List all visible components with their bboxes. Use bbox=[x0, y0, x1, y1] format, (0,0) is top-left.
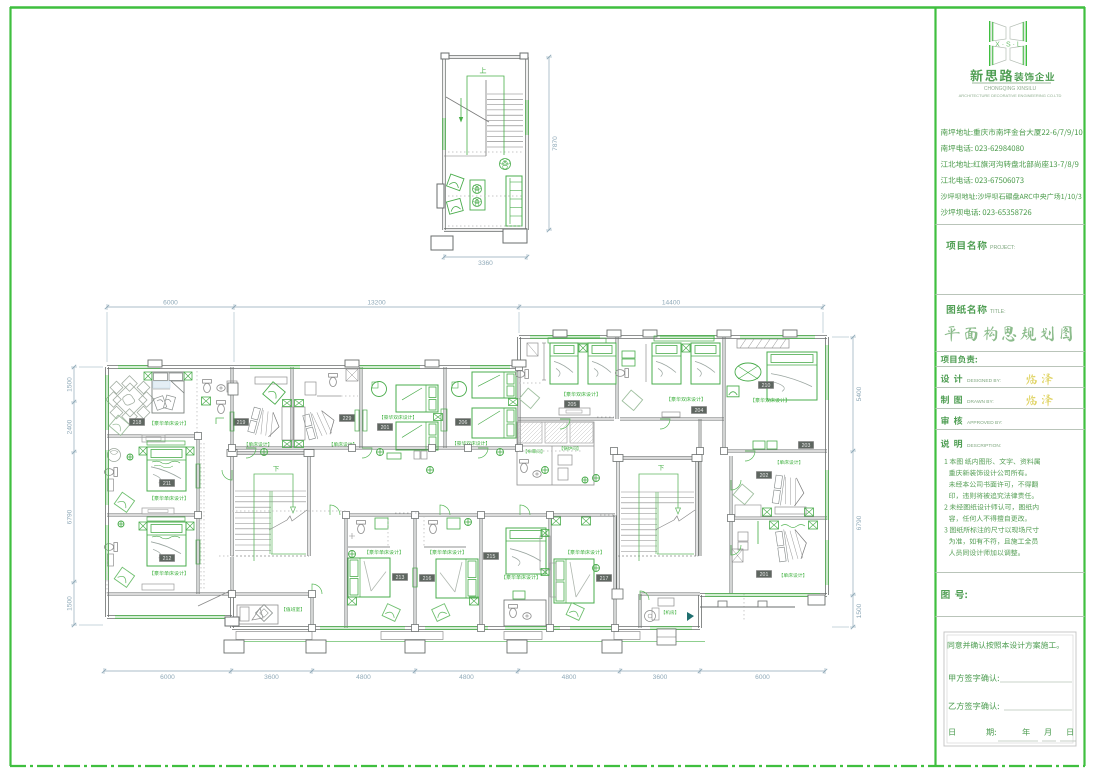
svg-text:X · S · L: X · S · L bbox=[995, 42, 1021, 49]
svg-text:215: 215 bbox=[487, 554, 496, 560]
svg-text:202: 202 bbox=[760, 473, 769, 479]
svg-text:201: 201 bbox=[760, 572, 769, 578]
svg-text:1500: 1500 bbox=[856, 603, 863, 618]
svg-text:3600: 3600 bbox=[264, 674, 279, 681]
svg-text:6000: 6000 bbox=[160, 674, 175, 681]
svg-text:206: 206 bbox=[459, 420, 468, 426]
svg-text:204: 204 bbox=[695, 408, 704, 414]
svg-text:ARCHITECTURE DECORATIVE ENGINE: ARCHITECTURE DECORATIVE ENGINEERING CO.L… bbox=[959, 93, 1062, 98]
svg-text:203: 203 bbox=[802, 443, 811, 449]
svg-text:216: 216 bbox=[423, 576, 432, 582]
svg-text:210: 210 bbox=[762, 383, 771, 389]
svg-text:212: 212 bbox=[163, 556, 172, 562]
svg-text:3600: 3600 bbox=[653, 674, 668, 681]
svg-text:DRAWN BY:: DRAWN BY: bbox=[967, 399, 994, 405]
svg-text:PROJECT:: PROJECT: bbox=[990, 245, 1015, 251]
svg-text:14400: 14400 bbox=[662, 300, 681, 307]
svg-text:5400: 5400 bbox=[856, 386, 863, 401]
svg-text:3360: 3360 bbox=[478, 260, 493, 267]
svg-text:229: 229 bbox=[343, 416, 352, 422]
svg-text:1500: 1500 bbox=[67, 596, 74, 611]
svg-text:213: 213 bbox=[396, 575, 405, 581]
svg-text:7870: 7870 bbox=[552, 136, 559, 151]
svg-text:211: 211 bbox=[163, 481, 171, 487]
svg-text:4800: 4800 bbox=[562, 674, 577, 681]
svg-text:APPROVED BY:: APPROVED BY: bbox=[967, 420, 1002, 426]
svg-text:4800: 4800 bbox=[459, 674, 474, 681]
svg-text:6000: 6000 bbox=[755, 674, 770, 681]
svg-text:4800: 4800 bbox=[356, 674, 371, 681]
svg-text:6000: 6000 bbox=[163, 300, 178, 307]
svg-text:6790: 6790 bbox=[67, 509, 74, 524]
svg-text:DESIGNED BY:: DESIGNED BY: bbox=[967, 378, 1001, 384]
svg-text:TITLE:: TITLE: bbox=[990, 309, 1006, 315]
svg-text:CHONGQING XINSILU: CHONGQING XINSILU bbox=[984, 86, 1037, 92]
svg-text:DESCRIPTION:: DESCRIPTION: bbox=[967, 443, 1001, 449]
svg-text:218: 218 bbox=[133, 420, 142, 426]
svg-text:219: 219 bbox=[237, 420, 246, 426]
svg-text:217: 217 bbox=[600, 576, 609, 582]
svg-text:1500: 1500 bbox=[67, 377, 74, 392]
svg-text:6790: 6790 bbox=[856, 515, 863, 530]
svg-text:2400: 2400 bbox=[67, 419, 74, 434]
svg-text:201: 201 bbox=[381, 425, 390, 431]
svg-text:13200: 13200 bbox=[367, 300, 386, 307]
svg-text:205: 205 bbox=[568, 402, 577, 408]
